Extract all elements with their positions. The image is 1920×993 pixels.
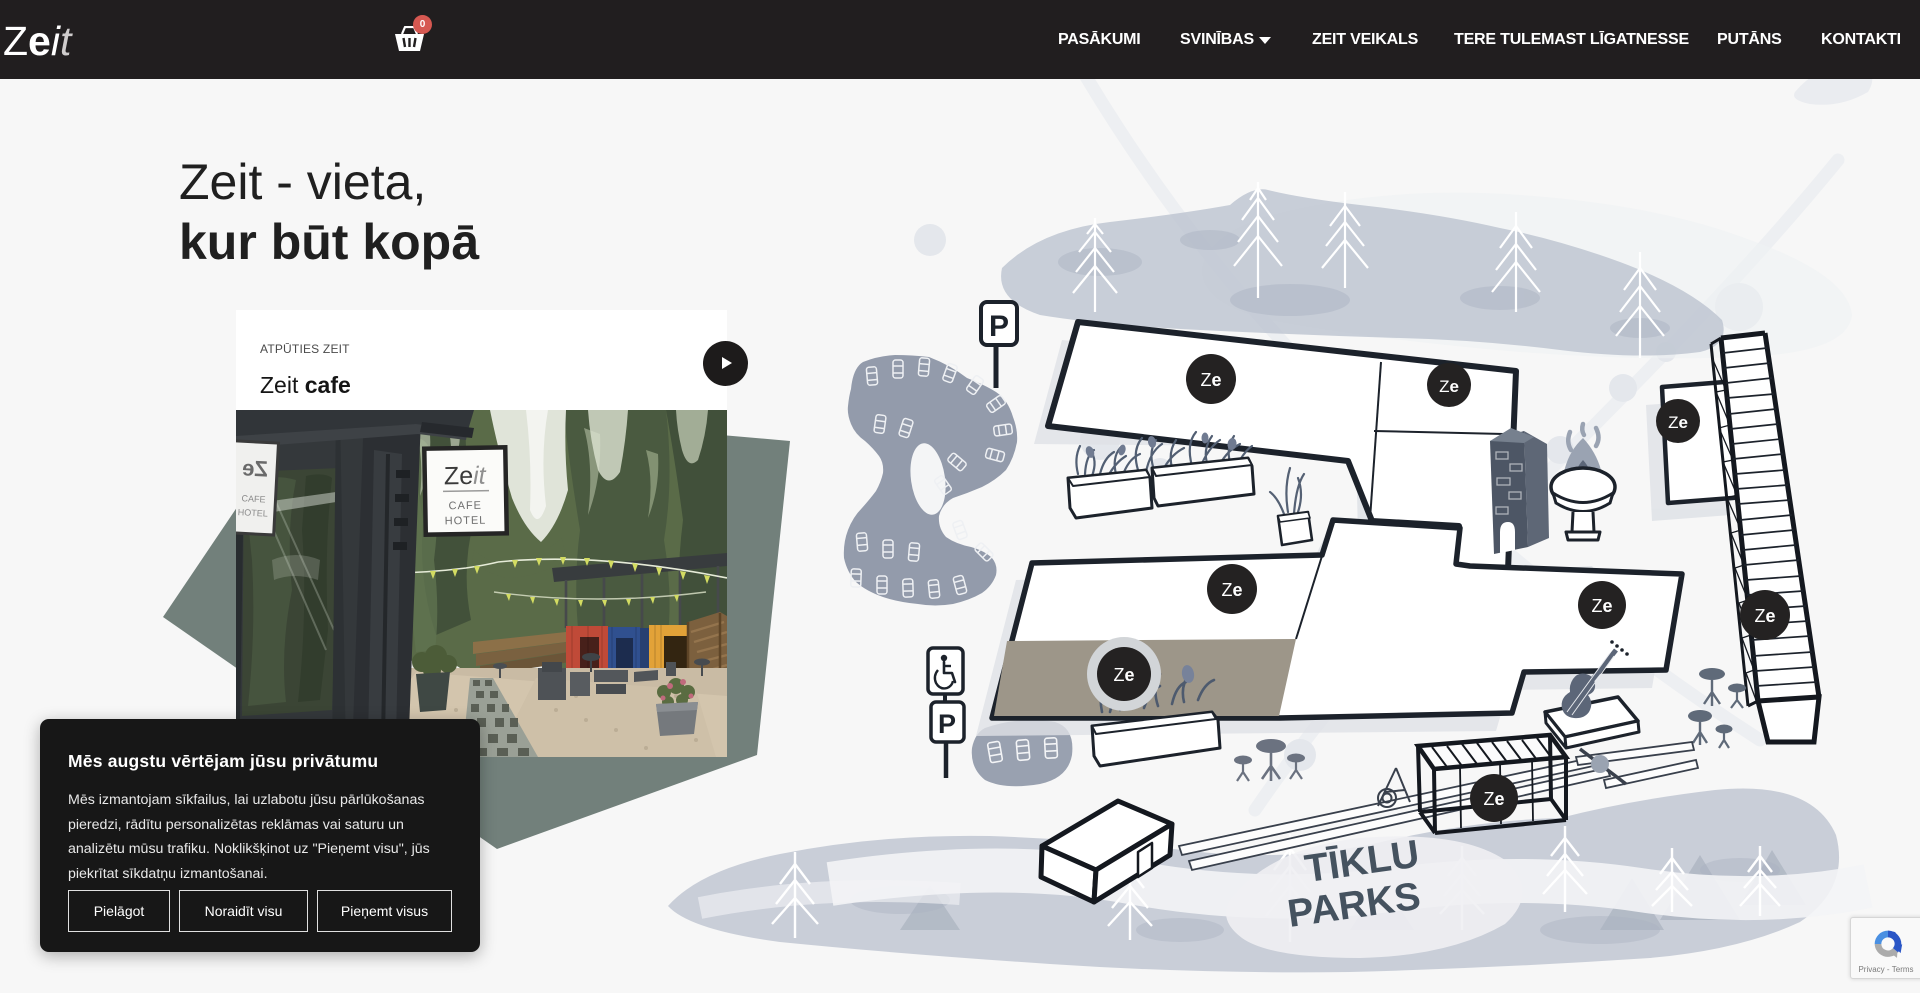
- svg-text:Ze: Ze: [1668, 413, 1688, 432]
- svg-text:Ze: Ze: [1221, 580, 1242, 600]
- svg-text:Ze: Ze: [1483, 789, 1504, 809]
- svg-text:Zeit: Zeit: [444, 462, 487, 491]
- svg-text:CAFE: CAFE: [449, 500, 483, 513]
- svg-text:Ze: Ze: [1200, 370, 1221, 390]
- svg-text:CAFE: CAFE: [241, 493, 266, 504]
- svg-text:HOTEL: HOTEL: [238, 507, 268, 519]
- svg-text:P: P: [938, 709, 956, 739]
- svg-text:HOTEL: HOTEL: [445, 515, 487, 528]
- svg-text:Ze: Ze: [1439, 377, 1459, 396]
- svg-text:Ze: Ze: [242, 455, 269, 481]
- svg-text:Ze: Ze: [1113, 665, 1134, 685]
- svg-text:Ze: Ze: [1754, 606, 1775, 626]
- svg-text:P: P: [989, 310, 1009, 343]
- svg-text:Ze: Ze: [1591, 596, 1612, 616]
